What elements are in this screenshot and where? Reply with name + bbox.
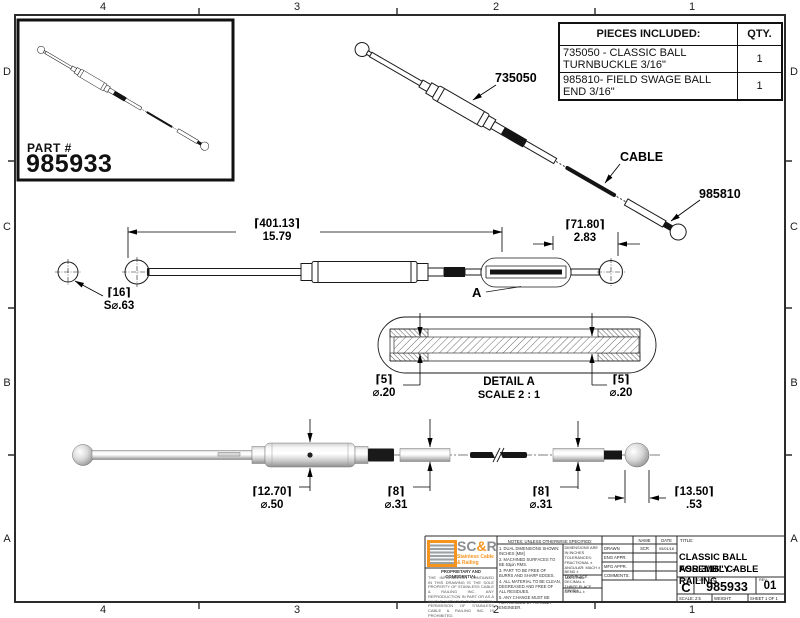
dim-swage-diameter: ⌈8⌉ ⌀.31	[513, 486, 569, 512]
zone-col-bottom-1: 1	[684, 604, 700, 616]
sheet-value: SHEET 1 OF 1	[750, 596, 778, 601]
dim-in: ⌀.31	[513, 499, 569, 512]
pieces-table-header-qty: QTY.	[737, 24, 781, 45]
comments-label: COMMENTS:	[604, 573, 630, 578]
zone-row-right-d: D	[786, 66, 800, 78]
eng-appr-label: ENG APPR.	[604, 555, 627, 560]
dim-swage-length: ⌈71.80⌉ 2.83	[550, 219, 620, 245]
dwg-no-value: 985933	[700, 580, 754, 595]
table-row-qty: 1	[737, 45, 781, 72]
name-header: NAME	[634, 538, 656, 543]
hex-nut	[355, 447, 368, 464]
company-logo-icon	[427, 540, 457, 567]
zone-col-bottom-4: 4	[95, 604, 111, 616]
dim-mm: ⌈13.50⌉	[661, 486, 727, 499]
dim-overall-length: ⌈401.13⌉ 15.79	[242, 218, 312, 244]
dim-mm: ⌈12.70⌉	[239, 486, 305, 499]
dim-in: 15.79	[242, 231, 312, 244]
drawn-label: DRAWN	[604, 546, 620, 551]
zone-row-left-b: B	[0, 377, 15, 389]
ball-left	[73, 445, 94, 466]
leader-cable	[605, 164, 620, 183]
fitting-wall	[390, 329, 428, 337]
detail-a-reference: A	[472, 285, 481, 300]
part-number-value: 985933	[26, 150, 112, 179]
dim-ball-diameter: ⌈13.50⌉ .53	[661, 486, 727, 512]
cable-cross-section	[394, 337, 639, 353]
ball-end-view	[55, 259, 81, 285]
drawn-name: SCR	[634, 546, 656, 551]
table-row-desc: 735050 - CLASSIC BALL TURNBUCKLE 3/16"	[560, 45, 737, 72]
dim-stud-diameter: ⌈8⌉ ⌀.31	[368, 486, 424, 512]
callout-swage-end: 985810	[699, 187, 741, 201]
threaded-stud	[444, 267, 465, 277]
zone-col-bottom-3: 3	[289, 604, 305, 616]
turnbuckle-body	[312, 262, 417, 283]
hex-nut	[301, 264, 312, 281]
mfg-appr-label: MFG APPR.	[604, 564, 627, 569]
callout-cable: CABLE	[620, 150, 663, 164]
company-logo-text: SC&R	[457, 540, 497, 553]
fitting-wall	[598, 353, 640, 361]
note-item: 2. MACHINED SURFACES TO BE 63µin RMS.	[499, 557, 561, 567]
zone-col-top-2: 2	[488, 1, 504, 13]
table-row-desc: 985810- FIELD SWAGE BALL END 3/16"	[560, 72, 737, 99]
detail-title: DETAIL A	[464, 376, 554, 389]
hex-nut	[252, 447, 265, 464]
zone-row-left-d: D	[0, 66, 15, 78]
material-label: MATERIAL	[565, 576, 585, 581]
date-header: DATE	[657, 538, 677, 543]
zone-row-left-a: A	[0, 533, 15, 545]
threaded-stud	[368, 449, 394, 462]
dim-in: 2.83	[550, 232, 620, 245]
dim-in: ⌀.31	[368, 499, 424, 512]
dim-ball-sphere: ⌈16⌉ S⌀.63	[90, 287, 148, 313]
notes-heading: NOTES: UNLESS OTHERWISE SPECIFIED:	[498, 539, 602, 544]
callout-turnbuckle: 735050	[495, 71, 537, 85]
zone-col-top-4: 4	[95, 1, 111, 13]
proprietary-text: THE INFORMATION CONTAINED IN THIS DRAWIN…	[428, 576, 494, 618]
dim-in: .53	[661, 499, 727, 512]
note-item: 1. DUAL DIMENSIONS SHOWN: INCHES [MM]	[499, 546, 561, 556]
pieces-table-header-desc: PIECES INCLUDED:	[560, 24, 737, 45]
swage-fitting	[553, 449, 604, 462]
dim-in: ⌀.20	[356, 387, 412, 400]
detail-scale: SCALE 2 : 1	[464, 389, 554, 402]
rev-value: 01	[758, 580, 782, 594]
dim-body-diameter: ⌈12.70⌉ ⌀.50	[239, 486, 305, 512]
cable-section	[490, 270, 562, 275]
scale-value: SCALE: 2:5	[679, 596, 701, 601]
logo-r: R	[487, 538, 497, 554]
notes-list: 1. DUAL DIMENSIONS SHOWN: INCHES [MM] 2.…	[499, 546, 561, 611]
swage-fitting	[400, 449, 450, 462]
ball-right	[625, 443, 649, 467]
dim-mm: ⌈8⌉	[368, 486, 424, 499]
zone-col-top-1: 1	[684, 1, 700, 13]
dim-detail-cable-left: ⌈5⌉ ⌀.20	[356, 374, 412, 400]
leader-turnbuckle	[473, 85, 496, 100]
fitting-wall	[390, 353, 428, 361]
dim-mm: ⌈71.80⌉	[550, 219, 620, 232]
hex-nut	[417, 264, 428, 281]
dim-mm: ⌈16⌉	[90, 287, 148, 300]
rod	[149, 269, 301, 276]
title-label: TITLE:	[680, 538, 694, 543]
dim-mm: ⌈401.13⌉	[242, 218, 312, 231]
logo-sc: SC	[457, 538, 476, 554]
zone-row-left-c: C	[0, 221, 15, 233]
zone-row-right-c: C	[786, 221, 800, 233]
dim-detail-cable-right: ⌈5⌉ ⌀.20	[593, 374, 649, 400]
note-item: 3. PART TO BE FREE OF BURRS AND SHARP ED…	[499, 568, 561, 578]
pieces-table: PIECES INCLUDED: QTY. 735050 - CLASSIC B…	[558, 22, 783, 101]
detail-a-title: DETAIL A SCALE 2 : 1	[464, 376, 554, 402]
shaded-profile-view	[73, 443, 661, 467]
leader-swage-end	[671, 200, 700, 221]
dim-mm: ⌈5⌉	[593, 374, 649, 387]
fitting-wall	[598, 329, 640, 337]
zone-row-right-a: A	[786, 533, 800, 545]
logo-ampersand: &	[476, 538, 486, 554]
dim-mm: ⌈8⌉	[513, 486, 569, 499]
dim-in: ⌀.20	[593, 387, 649, 400]
drawn-date: 05/01/18	[657, 547, 677, 552]
dim-mm: ⌈5⌉	[356, 374, 412, 387]
swage-tip	[604, 451, 622, 460]
finish-label: FINISH	[565, 589, 578, 594]
size-value: C	[679, 580, 693, 596]
note-item: 5. ANY CHANGE MUST BE AUTHORIZED BY AN S…	[499, 595, 561, 610]
zone-col-top-3: 3	[289, 1, 305, 13]
dim-in: ⌀.50	[239, 499, 305, 512]
weight-label: WEIGHT:	[714, 596, 731, 601]
body-hole	[307, 452, 312, 457]
table-row-qty: 1	[737, 72, 781, 99]
zone-row-right-b: B	[786, 377, 800, 389]
dim-in: S⌀.63	[90, 300, 148, 313]
wrench-flat	[218, 453, 240, 457]
logo-tagline-2: & Railing	[457, 561, 499, 567]
note-item: 4. ALL MATERIAL TO BE CLEAN, DEGREASED A…	[499, 579, 561, 594]
